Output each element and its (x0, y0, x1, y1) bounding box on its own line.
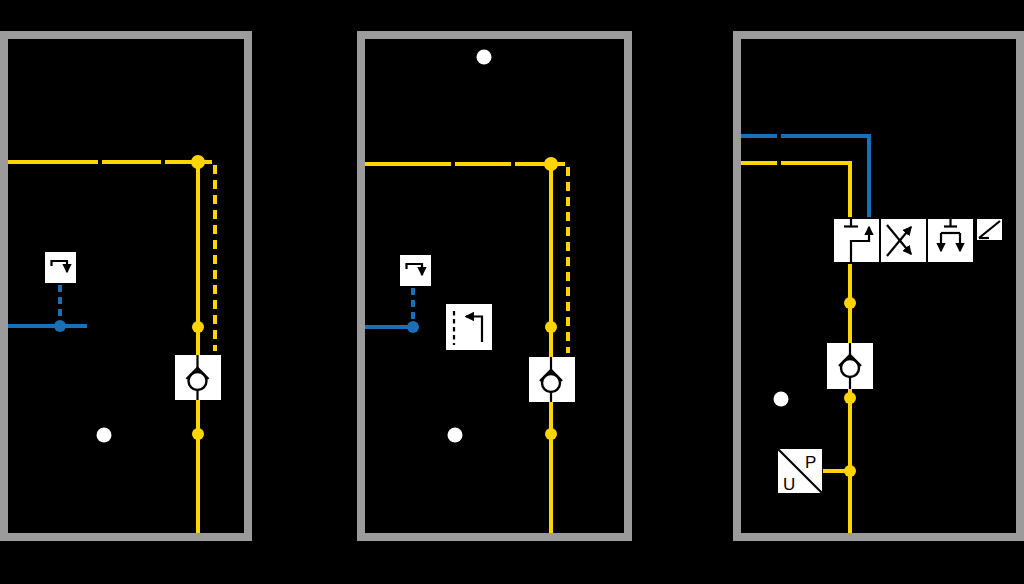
junction-dot (191, 155, 205, 169)
line-marker-tick (777, 159, 781, 167)
transducer-p-label: P (805, 453, 816, 472)
pilot-line-dashed (203, 162, 215, 351)
junction-dot (545, 428, 557, 440)
line-marker-tick (98, 158, 102, 166)
port-dot (774, 392, 789, 407)
step-command-box (45, 252, 76, 283)
signal-junction-dot (54, 320, 66, 332)
pressure-line (741, 163, 850, 218)
pressure-line (8, 162, 198, 533)
pilot-line-dashed (556, 164, 568, 353)
panel-1-frame (4, 35, 248, 537)
panel-1 (4, 35, 248, 537)
panel-3: P U (737, 35, 1020, 537)
junction-dot (844, 392, 856, 404)
junction-dot (545, 321, 557, 333)
panel-2 (361, 35, 628, 537)
junction-dot (192, 428, 204, 440)
directional-valve (833, 218, 1003, 263)
junction-dot (192, 321, 204, 333)
junction-dot (544, 157, 558, 171)
line-marker-tick (777, 132, 781, 140)
pressure-transducer: P U (777, 448, 850, 494)
circuit-diagram-canvas: P U (0, 0, 1024, 584)
valve-position-2 (880, 218, 927, 263)
port-dot-top (477, 50, 492, 65)
transducer-u-label: U (783, 475, 795, 494)
diagram-svg: P U (0, 0, 1024, 584)
junction-dot (844, 465, 856, 477)
junction-dot (844, 297, 856, 309)
line-marker-tick (451, 160, 455, 168)
line-marker-tick (161, 158, 165, 166)
port-dot (448, 428, 463, 443)
signal-junction-dot (407, 321, 419, 333)
line-marker-tick (511, 160, 515, 168)
step-command-box (400, 255, 431, 286)
port-dot (97, 428, 112, 443)
